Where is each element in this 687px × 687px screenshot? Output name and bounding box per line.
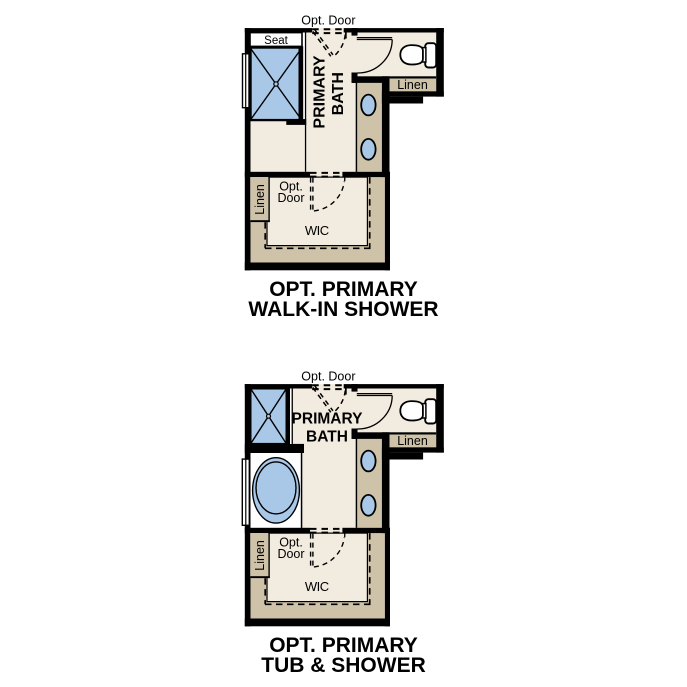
svg-text:Door: Door — [277, 547, 304, 561]
svg-text:TUB & SHOWER: TUB & SHOWER — [261, 654, 426, 677]
svg-text:Opt. Door: Opt. Door — [301, 14, 355, 28]
svg-text:WIC: WIC — [305, 579, 329, 594]
svg-text:PRIMARY: PRIMARY — [292, 410, 364, 427]
svg-text:BATH: BATH — [330, 72, 347, 115]
svg-text:Linen: Linen — [253, 184, 267, 215]
svg-text:PRIMARY: PRIMARY — [312, 55, 329, 129]
svg-text:Door: Door — [277, 191, 304, 205]
svg-text:WIC: WIC — [305, 223, 329, 238]
svg-text:WALK-IN SHOWER: WALK-IN SHOWER — [248, 298, 438, 321]
svg-text:Linen: Linen — [397, 78, 428, 92]
svg-text:Linen: Linen — [253, 540, 267, 571]
svg-text:Linen: Linen — [397, 434, 428, 448]
svg-text:Seat: Seat — [264, 35, 288, 47]
svg-text:Opt. Door: Opt. Door — [301, 370, 355, 384]
svg-text:BATH: BATH — [306, 429, 348, 446]
